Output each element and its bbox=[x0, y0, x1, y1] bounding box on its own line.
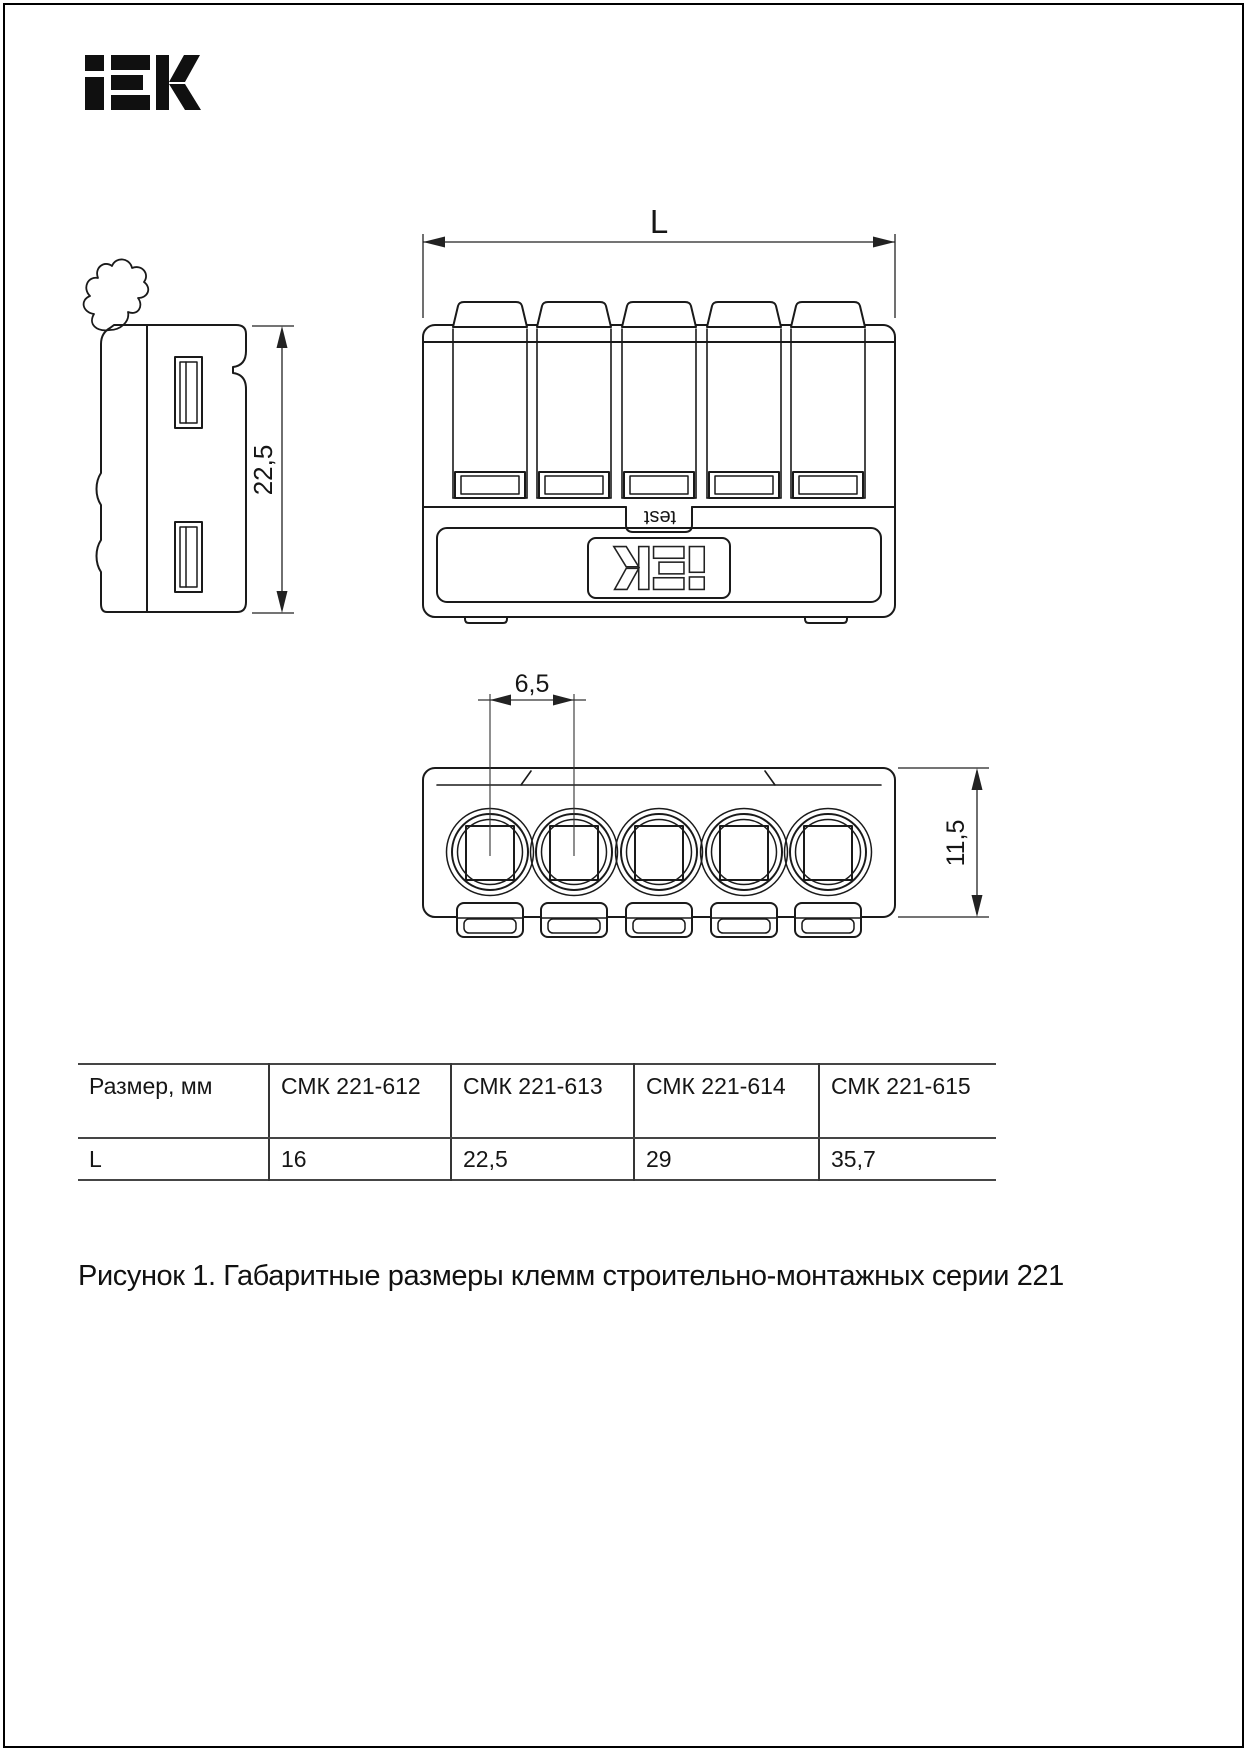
table-header-cell: СМК 221-615 bbox=[819, 1064, 996, 1138]
table-cell: 35,7 bbox=[819, 1138, 996, 1180]
table-header-cell: СМК 221-614 bbox=[634, 1064, 819, 1138]
dim-label-length: L bbox=[650, 203, 668, 240]
wire-squiggle bbox=[84, 259, 149, 330]
front-view-drawing bbox=[423, 302, 895, 623]
table-header-cell: Размер, мм bbox=[78, 1064, 269, 1138]
device-iek-logo: iEK bbox=[614, 547, 704, 590]
figure-caption: Рисунок 1. Габаритные размеры клемм стро… bbox=[78, 1260, 1064, 1293]
size-table: Размер, мм СМК 221-612 СМК 221-613 СМК 2… bbox=[78, 1063, 996, 1181]
test-label: test bbox=[643, 506, 676, 528]
document-page: { "page": { "background": "#ffffff", "bo… bbox=[0, 0, 1247, 1751]
table-header-cell: СМК 221-613 bbox=[451, 1064, 634, 1138]
dim-label-pitch: 6,5 bbox=[515, 670, 550, 698]
side-view-drawing bbox=[84, 259, 246, 612]
dim-label-height: 22,5 bbox=[248, 445, 278, 496]
bottom-view-drawing bbox=[423, 768, 895, 937]
table-cell: 16 bbox=[269, 1138, 451, 1180]
table-cell: 29 bbox=[634, 1138, 819, 1180]
dim-pitch bbox=[478, 694, 586, 856]
dim-label-depth: 11,5 bbox=[942, 820, 970, 867]
table-header-row: Размер, мм СМК 221-612 СМК 221-613 СМК 2… bbox=[78, 1064, 996, 1138]
table-cell: 22,5 bbox=[451, 1138, 634, 1180]
table-header-cell: СМК 221-612 bbox=[269, 1064, 451, 1138]
table-row: L 16 22,5 29 35,7 bbox=[78, 1138, 996, 1180]
table-cell: L bbox=[78, 1138, 269, 1180]
dimensional-drawing: 22,5 iEK bbox=[0, 0, 1247, 1751]
